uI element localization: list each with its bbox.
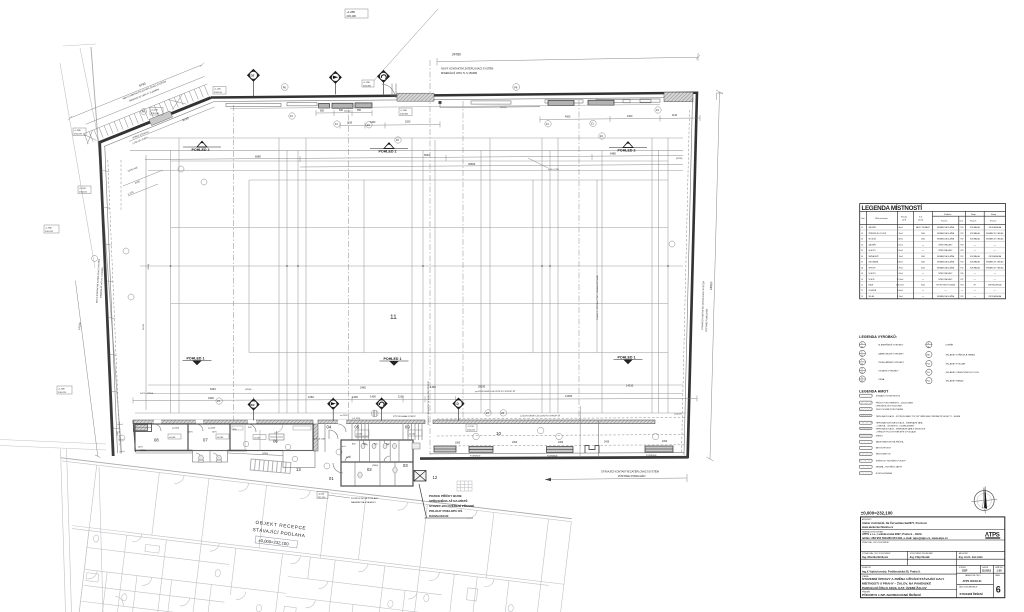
svg-text:4060: 4060 (565, 116, 571, 119)
svg-text:PŘEDSÍŇ WC+POZOR: PŘEDSÍŇ WC+POZOR (869, 232, 888, 235)
svg-text:up.2070 DESKY+60 2070 PO STROP: up.2070 DESKY+60 2070 PO STROP SŤ (475, 390, 516, 393)
svg-text:1060: 1060 (370, 121, 376, 124)
svg-text:SDK/MALBA: SDK/MALBA (970, 226, 981, 229)
svg-text:4400: 4400 (627, 115, 633, 118)
svg-text:01: 01 (861, 227, 863, 229)
svg-text:KOMORA: KOMORA (869, 289, 877, 292)
svg-text:+0,000: +0,000 (318, 494, 325, 496)
svg-text:P6: P6 (514, 85, 518, 89)
svg-text:KLEMPÍŘSKÉ VÝROBKY: KLEMPÍŘSKÉ VÝROBKY (878, 344, 904, 347)
svg-text:P05: P05 (960, 250, 963, 252)
svg-text:+0,000: +0,000 (356, 433, 364, 435)
svg-text:Stěny: Stěny (991, 213, 996, 216)
svg-text:OSTATNÍ VÝROBKY: OSTATNÍ VÝROBKY (878, 369, 899, 372)
svg-text:ATPS 001/18-01: ATPS 001/18-01 (963, 579, 983, 583)
svg-text:+1,890: +1,890 (45, 227, 53, 229)
svg-text:11: 11 (390, 314, 397, 321)
svg-text:NAVÁZAT NA STÁVAJÍCÍ: NAVÁZAT NA STÁVAJÍCÍ (351, 501, 376, 504)
svg-text:1120: 1120 (672, 114, 678, 117)
svg-text:BT: BT (974, 285, 976, 287)
svg-text:SDK/MALBA: SDK/MALBA (970, 261, 981, 264)
svg-text:SÁDROKARTONOVÁ PŘÍČKA: SÁDROKARTONOVÁ PŘÍČKA (876, 441, 904, 444)
svg-text:POVRCH NOVÉ PODLAHY: POVRCH NOVÉ PODLAHY (351, 497, 379, 500)
svg-text:SKLAD: SKLAD (869, 295, 875, 298)
svg-text:STAVBY–PO OVĚŘENÍ PŘESNÉ: STAVBY–PO OVĚŘENÍ PŘESNÉ (429, 503, 474, 508)
svg-text:P02: P02 (960, 267, 963, 269)
svg-text:ZÁMEČNICKÉ VÝROBKY: ZÁMEČNICKÉ VÝROBKY (878, 352, 904, 355)
svg-text:SPORTOVNÍ PODLAHA: SPORTOVNÍ PODLAHA (936, 284, 955, 287)
svg-text:POHLED 2: POHLED 2 (192, 148, 210, 152)
svg-text:2020: 2020 (405, 121, 411, 124)
svg-text:KERAMICKÁ DLAŽBA: KERAMICKÁ DLAŽBA (937, 266, 955, 269)
svg-text:3430: 3430 (208, 396, 214, 400)
svg-text:Ing. Monika Bíšková: Ing. Monika Bíšková (862, 555, 888, 559)
svg-text:sd.2070: sd.2070 (674, 414, 683, 416)
svg-text:06: 06 (273, 439, 278, 444)
svg-text:2600: 2600 (921, 262, 925, 264)
svg-text:+1,890: +1,890 (58, 388, 66, 390)
svg-text:12: 12 (861, 290, 863, 292)
svg-text:232,100: 232,100 (318, 497, 326, 499)
svg-text:03: 03 (861, 239, 863, 241)
svg-text:POZEDNICE: POZEDNICE (646, 455, 657, 457)
svg-text:09: 09 (861, 273, 863, 275)
svg-text:a=2440: a=2440 (208, 428, 216, 430)
svg-text:10: 10 (861, 279, 863, 281)
svg-text:28190: 28190 (478, 385, 486, 389)
svg-text:www.atelierarchitektu.cz: www.atelierarchitektu.cz (861, 525, 894, 529)
svg-text:4.19m2: 4.19m2 (897, 233, 903, 235)
svg-text:233,490: 233,490 (363, 85, 372, 87)
svg-text:P07: P07 (960, 279, 963, 281)
svg-text:P6: P6 (283, 85, 287, 89)
svg-text:LEGENDA HMOT: LEGENDA HMOT (859, 389, 889, 393)
svg-text:KERAMICKÁ DLAŽBA: KERAMICKÁ DLAŽBA (937, 226, 955, 229)
svg-text:05: 05 (355, 425, 360, 430)
svg-text:2600: 2600 (921, 267, 925, 269)
svg-text:6240: 6240 (210, 387, 216, 391)
svg-text:OMÍTKA/OBKLAD: OMÍTKA/OBKLAD (988, 284, 1003, 287)
svg-text:06: 06 (861, 256, 863, 258)
svg-text:404.55m2: 404.55m2 (896, 285, 904, 287)
svg-text:KERAMICKÝ OBKLAD: KERAMICKÝ OBKLAD (986, 238, 1004, 241)
svg-text:234,470: 234,470 (58, 392, 67, 394)
svg-text:PŮDORYS 1.NP–NAVRHOVANÉ ŘEŠENÍ: PŮDORYS 1.NP–NAVRHOVANÉ ŘEŠENÍ (862, 592, 921, 597)
svg-text:ZDIVO NOSNÉ POROTHERM: ZDIVO NOSNÉ POROTHERM (876, 408, 904, 411)
svg-text:Ing. Filip Novák: Ing. Filip Novák (910, 555, 930, 559)
svg-text:OMÍTKA/MALBA: OMÍTKA/MALBA (988, 295, 1002, 298)
svg-text:SKLADBY PODLAH: SKLADBY PODLAH (946, 363, 966, 366)
svg-text:DŘEVO/PALUBKY: DŘEVO/PALUBKY (938, 272, 953, 275)
svg-text:02: 02 (367, 467, 372, 472)
svg-text:OMÍTKA/MALBA: OMÍTKA/MALBA (988, 226, 1002, 229)
svg-text:ZAKÁZKOVÉ ČÍSLO: ZAKÁZKOVÉ ČÍSLO (965, 574, 981, 577)
svg-text:UMÝVÁRNA: UMÝVÁRNA (869, 261, 879, 264)
svg-text:sv.2120: sv.2120 (340, 415, 348, 417)
svg-text:SÁDR. TERMAXIT: SÁDR. TERMAXIT (916, 226, 930, 229)
svg-text:1.26m2: 1.26m2 (897, 250, 903, 252)
svg-text:234,220: 234,220 (467, 430, 476, 432)
svg-text:+0,430: +0,430 (151, 110, 159, 112)
svg-text:13: 13 (296, 467, 301, 472)
svg-text:11: 11 (861, 285, 863, 287)
svg-text:+1,520: +1,520 (79, 188, 87, 190)
svg-text:KERAMICKÝ OBKLAD: KERAMICKÝ OBKLAD (986, 261, 1004, 264)
svg-text:TEPELNÁ IZOLACE – EXTRUDOVANÝ: TEPELNÁ IZOLACE – EXTRUDOVANÝ POLYSTYRÉN… (876, 415, 961, 418)
svg-text:650: 650 (357, 109, 362, 112)
svg-text:POZICE PŘÍČKY BUDE: POZICE PŘÍČKY BUDE (429, 493, 462, 498)
svg-text:tel/fax: 283 950 591/283 951 0: tel/fax: 283 950 591/283 951 093, e-mail… (862, 536, 948, 540)
svg-text:a=2440: a=2440 (172, 428, 180, 430)
svg-text:P03: P03 (960, 285, 963, 287)
svg-text:POZEDNICE: POZEDNICE (470, 455, 481, 457)
svg-text:1400: 1400 (352, 395, 358, 399)
svg-text:KERAMICKÁ DLAŽBA: KERAMICKÁ DLAŽBA (937, 261, 955, 264)
svg-text:ARCHITEKT: ARCHITEKT (862, 518, 872, 521)
svg-text:1060: 1060 (512, 442, 518, 444)
svg-text:P02: P02 (960, 233, 963, 235)
svg-text:[mm]: [mm] (919, 220, 924, 222)
svg-text:5480: 5480 (610, 152, 616, 156)
svg-text:BETON PROSTÝ: BETON PROSTÝ (876, 447, 892, 450)
svg-text:(2100): (2100) (344, 111, 351, 113)
svg-text:18910: 18910 (709, 281, 713, 290)
svg-text:DŘEVO/PALUBKY: DŘEVO/PALUBKY (938, 249, 953, 252)
svg-text:ZÁDVEŘÍ: ZÁDVEŘÍ (869, 243, 877, 246)
svg-text:POHLED 2: POHLED 2 (618, 148, 636, 152)
svg-text:UPŘESNĚNA AŽ NA MÍSTĚ: UPŘESNĚNA AŽ NA MÍSTĚ (429, 498, 468, 503)
svg-text:P02: P02 (960, 256, 963, 258)
svg-text:1450: 1450 (430, 385, 436, 389)
svg-text:(2100): (2100) (245, 389, 252, 391)
svg-text:(+2,120): (+2,120) (352, 418, 360, 420)
svg-text:TRUHLÁŘSKÉ VÝROBKY: TRUHLÁŘSKÉ VÝROBKY (878, 361, 904, 364)
svg-text:2.91m2: 2.91m2 (897, 244, 903, 246)
svg-text:1.82m2: 1.82m2 (897, 239, 903, 241)
svg-text:2600: 2600 (921, 239, 925, 241)
svg-text:ZODPOVĚDNÝ PROJEKTANT: ZODPOVĚDNÝ PROJEKTANT (910, 552, 933, 555)
svg-text:14230: 14230 (143, 323, 145, 330)
svg-text:6: 6 (996, 585, 1001, 595)
svg-text:234,100: 234,100 (79, 192, 88, 194)
svg-text:2600: 2600 (921, 233, 925, 235)
svg-text:234,470: 234,470 (45, 231, 54, 233)
svg-text:ŠTĚRKOVÝ HUTNĚNÝ PODSYP: ŠTĚRKOVÝ HUTNĚNÝ PODSYP (876, 459, 907, 462)
svg-text:SPRCHY: SPRCHY (869, 267, 877, 269)
svg-text:OMÍTKA/MALBA: OMÍTKA/MALBA (988, 255, 1002, 258)
svg-text:+0,000: +0,000 (217, 437, 225, 439)
svg-text:LEGENDA VÝROBKŮ:: LEGENDA VÝROBKŮ: (859, 334, 897, 339)
svg-text:07: 07 (203, 438, 208, 443)
svg-text:13,9 µ6 1250: 13,9 µ6 1250 (313, 439, 326, 441)
svg-text:ZEMINA – HUTNĚNÝ ZÁSYP: ZEMINA – HUTNĚNÝ ZÁSYP (876, 466, 903, 469)
svg-text:ATPS s.r.o., Lednárenská 2897,: ATPS s.r.o., Lednárenská 2897, Praha 9 –… (862, 532, 922, 536)
svg-text:14510: 14510 (626, 384, 634, 388)
svg-text:S.B.+1,750: S.B.+1,750 (548, 169, 560, 171)
svg-text:SDK/MALBA: SDK/MALBA (970, 238, 981, 241)
svg-text:650: 650 (320, 110, 325, 113)
svg-text:KERAMICKÝ OBKLAD: KERAMICKÝ OBKLAD (986, 266, 1004, 269)
svg-text:ŽELEZOBETON: ŽELEZOBETON (876, 453, 891, 456)
svg-text:1400: 1400 (370, 395, 376, 399)
svg-text:P04: P04 (960, 244, 963, 246)
svg-text:7.76m2: 7.76m2 (897, 256, 903, 258)
svg-text:09: 09 (405, 425, 410, 430)
svg-text:1:50: 1:50 (996, 569, 1002, 573)
svg-text:1060: 1060 (558, 442, 564, 444)
svg-text:Ing.X Vojtěchovský, Poděbradsk: Ing.X Vojtěchovský, Poděbradská 28, Prah… (862, 569, 921, 573)
svg-text:+1,390: +1,390 (363, 82, 371, 84)
svg-text:DŘEVO/PALUBKY: DŘEVO/PALUBKY (938, 243, 953, 246)
svg-text:STAVEBNÍ ÚPRAVY A ZMĚNA UŽÍVÁN: STAVEBNÍ ÚPRAVY A ZMĚNA UŽÍVÁNÍ STÁVAJÍC… (862, 576, 945, 581)
svg-text:3.86m2: 3.86m2 (897, 262, 903, 264)
svg-text:DŘEVO/PALUBKY: DŘEVO/PALUBKY (938, 278, 953, 281)
svg-text:ZPRACOVAL, ODP. ZODPOVĚDNÝ: ZPRACOVAL, ODP. ZODPOVĚDNÝ (862, 541, 890, 544)
svg-text:5640: 5640 (424, 153, 430, 157)
svg-text:TEPELNÁ IZOLACE – MINERÁLNÍ VA: TEPELNÁ IZOLACE – MINERÁLNÍ VATA V KROKV… (876, 428, 926, 431)
svg-text:SCHODY: SCHODY (869, 250, 877, 252)
svg-text:(2130): (2130) (148, 264, 150, 270)
svg-text:2430: 2430 (604, 442, 610, 444)
svg-text:SCHODY: SCHODY (869, 273, 877, 275)
svg-text:Povrch: Povrch (970, 221, 976, 223)
svg-text:SKLADBY VENKOVNÍCH PLOCH: SKLADBY VENKOVNÍCH PLOCH (946, 371, 980, 374)
svg-text:08: 08 (861, 267, 863, 269)
svg-text:INVESTOR: INVESTOR (862, 567, 871, 569)
svg-text:+0,000: +0,000 (169, 437, 177, 439)
svg-text:S.V.: S.V. (919, 217, 923, 219)
svg-text:P06: P06 (960, 273, 963, 275)
svg-text:KANALIZACE: KANALIZACE (429, 514, 449, 518)
svg-text:234,470: 234,470 (74, 134, 83, 136)
svg-text:232,530: 232,530 (151, 113, 160, 115)
svg-text:03: 03 (403, 463, 408, 468)
svg-text:+2,120: +2,120 (467, 426, 475, 428)
svg-text:(2200): (2200) (140, 450, 146, 452)
svg-text:Účel místnosti: Účel místnosti (875, 217, 888, 220)
svg-text:SDK/MALBA: SDK/MALBA (970, 266, 981, 269)
svg-text:Povrch: Povrch (941, 221, 947, 223)
svg-text:ROSTLÁ ZEMINA: ROSTLÁ ZEMINA (876, 472, 893, 475)
svg-text:WC MUŽI: WC MUŽI (869, 238, 877, 241)
svg-text:ZŮSTANE PONECHÁN: ZŮSTANE PONECHÁN (705, 308, 709, 332)
svg-text:POLOHY POKLOPU KŠ: POLOHY POKLOPU KŠ (429, 508, 462, 513)
svg-text:13: 13 (861, 296, 863, 298)
svg-text:20.76m2: 20.76m2 (897, 279, 904, 281)
svg-text:KERAMICKÁ DLAŽBA: KERAMICKÁ DLAŽBA (937, 295, 955, 298)
svg-text:+1,280: +1,280 (400, 110, 408, 112)
svg-text:POZEDNICE: POZEDNICE (547, 456, 558, 458)
svg-text:2460: 2460 (360, 386, 366, 390)
svg-text:+1,000: +1,000 (214, 89, 222, 91)
svg-text:SDK/MALBA: SDK/MALBA (970, 255, 981, 258)
svg-text:KERAMICKÁ DLAŽBA: KERAMICKÁ DLAŽBA (937, 232, 955, 235)
svg-text:ARCHITEKT: ARCHITEKT (959, 552, 969, 555)
svg-text:1.23m2: 1.23m2 (897, 273, 903, 275)
svg-text:POHLED 1: POHLED 1 (384, 357, 402, 361)
svg-text:3.79m2: 3.79m2 (897, 267, 903, 269)
svg-text:1100: 1100 (398, 394, 404, 398)
svg-text:POHLED 2: POHLED 2 (379, 149, 397, 153)
svg-text:6000: 6000 (921, 285, 925, 287)
svg-text:3.60m2: 3.60m2 (897, 227, 903, 229)
svg-text:P02: P02 (960, 239, 963, 241)
svg-text:LEGENDA MÍSTNOSTÍ: LEGENDA MÍSTNOSTÍ (862, 204, 923, 212)
svg-text:ČÁST DOKUMENTACE: ČÁST DOKUMENTACE (959, 586, 978, 589)
svg-text:2600: 2600 (921, 256, 925, 258)
svg-text:233,380: 233,380 (400, 114, 409, 116)
svg-text:10: 10 (496, 431, 502, 436)
svg-text:(2130): (2130) (676, 158, 683, 160)
svg-text:233,190: 233,190 (347, 14, 357, 18)
svg-text:Ozn: Ozn (861, 218, 865, 220)
svg-text:OKNA: OKNA (878, 378, 885, 381)
svg-text:12360: 12360 (565, 394, 573, 398)
svg-text:DŘEVO: DŘEVO (876, 434, 884, 437)
svg-text:07: 07 (861, 262, 863, 264)
svg-text:+ PĚNOVÝ POLYSTYRÉN EPS V PODL: + PĚNOVÝ POLYSTYRÉN EPS V PODLAZE (876, 431, 917, 434)
svg-text:Povrch: Povrch (990, 221, 996, 223)
svg-text:04: 04 (327, 425, 332, 430)
svg-text:P02: P02 (960, 262, 963, 264)
svg-text:KERAMICKÁ DLAŽBA: KERAMICKÁ DLAŽBA (937, 238, 955, 241)
svg-text:POHLED 1: POHLED 1 (187, 356, 205, 360)
svg-text:01: 01 (329, 476, 334, 481)
svg-text:KERAMICKÁ DLAŽBA: KERAMICKÁ DLAŽBA (937, 255, 955, 258)
svg-text:PARCELNÍ ČÍSLO 340/3, KAT. ÚZE: PARCELNÍ ČÍSLO 340/3, KAT. ÚZEMÍ ŽALOV (862, 585, 928, 590)
svg-text:SDK/MALBA: SDK/MALBA (970, 232, 981, 235)
svg-text:+1,890: +1,890 (74, 130, 82, 132)
svg-text:[m²]: [m²] (903, 219, 907, 222)
svg-text:Ing. Arch. Jan Aleš: Ing. Arch. Jan Aleš (959, 555, 983, 559)
svg-text:SKLADBY FASÁD: SKLADBY FASÁD (946, 380, 964, 383)
svg-text:STÁVAJÍCÍ PŘÍČKA VÝŠKY 2600MM: STÁVAJÍCÍ PŘÍČKA VÝŠKY 2600MM ZŮSTANE (596, 275, 599, 320)
svg-text:(2440): (2440) (372, 465, 378, 467)
svg-text:600: 600 (339, 109, 344, 112)
svg-text:1060: 1060 (455, 442, 461, 444)
svg-text:24780: 24780 (452, 53, 461, 57)
svg-text:02: 02 (861, 233, 863, 235)
svg-text:12: 12 (433, 475, 438, 480)
svg-text:(2200): (2200) (262, 453, 268, 455)
svg-text:1190: 1190 (347, 122, 353, 125)
svg-text:MÍSTNOSTI U PRAHY – ŽALOV, NA: MÍSTNOSTI U PRAHY – ŽALOV, NA PANENSKÉ (862, 581, 931, 586)
svg-text:sd.2070 DESKY+60 2070 PO STROP: sd.2070 DESKY+60 2070 PO STROP SŤ (520, 415, 561, 418)
svg-text:VYPRACOVAL, ODP. ZODPOVĚDNÝ: VYPRACOVAL, ODP. ZODPOVĚDNÝ (862, 552, 891, 555)
svg-text:P01: P01 (960, 227, 963, 229)
svg-text:08: 08 (154, 438, 159, 443)
svg-text:TEPELNÁ/ZVUKOVÁ IZOLACE – MINE: TEPELNÁ/ZVUKOVÁ IZOLACE – MINERÁLNÍ VATA (876, 421, 923, 424)
svg-text:OHELNÉ BLOKY 80 A 75MM: OHELNÉ BLOKY 80 A 75MM (876, 404, 902, 407)
svg-text:Plocha: Plocha (901, 217, 908, 219)
svg-text:DSP: DSP (962, 569, 968, 573)
svg-text:1060: 1060 (308, 395, 314, 399)
svg-text:PŘÍČKY POROTHERM TL. 100 A 150: PŘÍČKY POROTHERM TL. 100 A 150MM (876, 401, 913, 404)
svg-text:SCHOD: SCHOD (869, 279, 876, 281)
svg-text:3.00m2: 3.00m2 (897, 290, 903, 292)
svg-text:05: 05 (861, 250, 863, 252)
svg-text:D2: D2 (251, 74, 255, 78)
svg-text:2xPT+d2/150: 2xPT+d2/150 (140, 393, 154, 395)
svg-text:+ OMÍTKA – CELKEM TL. 150MM A: + OMÍTKA – CELKEM TL. 150MM A 80MM (876, 424, 914, 427)
svg-text:+1,28B: +1,28B (347, 10, 356, 14)
svg-text:POHLED 1: POHLED 1 (618, 355, 636, 359)
svg-text:30660: 30660 (468, 162, 476, 166)
svg-text:MINERÁLNÍ VATA TL 5,150MM: MINERÁLNÍ VATA TL 5,150MM (441, 71, 477, 75)
svg-text:Ozn: Ozn (960, 221, 964, 223)
svg-text:P02: P02 (960, 296, 963, 298)
svg-text:STÁVAJÍCÍ KONSTRUKCE: STÁVAJÍCÍ KONSTRUKCE (876, 394, 901, 397)
svg-text:D2: D2 (251, 403, 255, 407)
svg-text:11/2018: 11/2018 (982, 569, 992, 573)
svg-text:04: 04 (861, 244, 863, 246)
svg-text:±0,000=232,100: ±0,000=232,100 (861, 511, 893, 516)
svg-text:3.76m2: 3.76m2 (897, 296, 903, 298)
svg-text:1060: 1060 (662, 441, 668, 443)
svg-text:ŠATNA MUŽI: ŠATNA MUŽI (869, 255, 880, 258)
svg-text:6080: 6080 (255, 155, 261, 159)
svg-text:ZÁDVEŘÍ: ZÁDVEŘÍ (869, 226, 877, 229)
svg-text:KERAMICKÝ OBKLAD: KERAMICKÝ OBKLAD (986, 232, 1004, 235)
svg-text:SŤ PODLAHA–STROP: SŤ PODLAHA–STROP (393, 415, 416, 418)
svg-text:DVEŘE: DVEŘE (946, 344, 954, 347)
svg-text:233,100: 233,100 (214, 92, 223, 94)
svg-text:Podlaha: Podlaha (944, 214, 952, 216)
svg-text:SKLADBY STŘECH A TERAS: SKLADBY STŘECH A TERAS (946, 354, 976, 357)
